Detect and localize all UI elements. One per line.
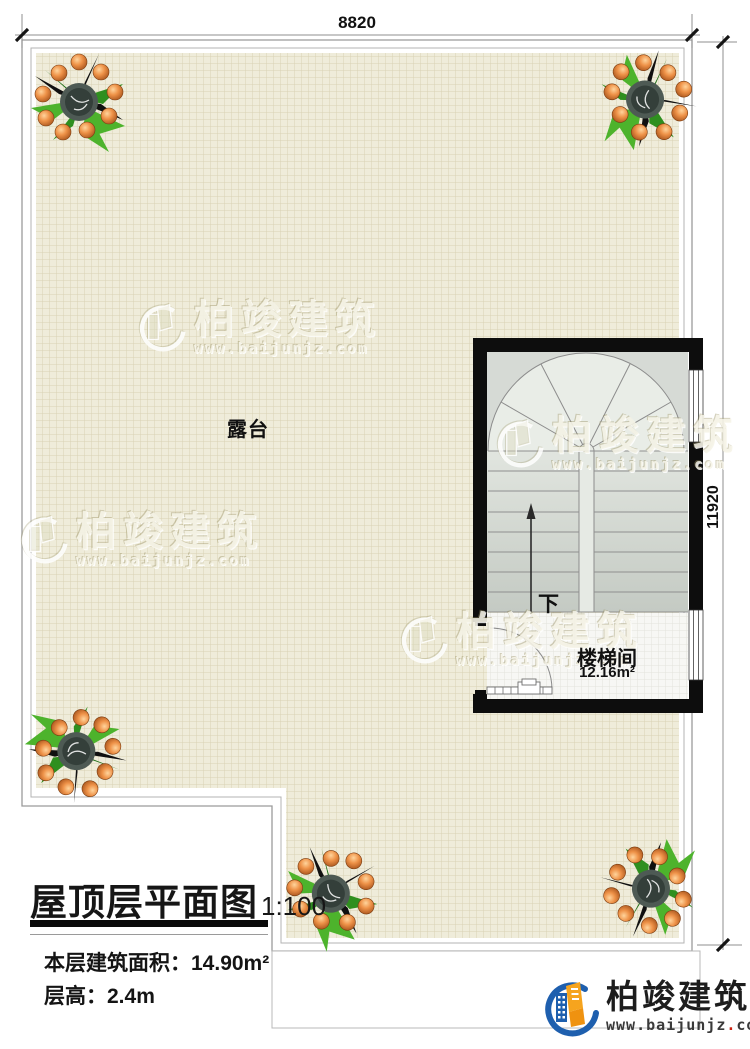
spec-floor-height-value: 2.4m (107, 985, 155, 1008)
company-logo: 柏竣建筑 www.baijunjz.com (539, 980, 750, 1040)
stair-flights (487, 444, 688, 613)
plan-scale: 1:100 (261, 891, 326, 921)
dimension-right-value: 11920 (705, 479, 723, 535)
floor-plan-page: 柏竣建筑 www.baijunjz.com 柏竣建筑 www.baijunjz.… (0, 0, 750, 1049)
title-underline-thick (30, 920, 268, 927)
logo-url-prefix: www.baijunjz (606, 1016, 726, 1034)
dimension-top-value: 8820 (307, 13, 407, 33)
logo-mark-icon (539, 980, 599, 1040)
spec-floor-height: 层高：2.4m (44, 980, 155, 1010)
spec-floor-area: 本层建筑面积：14.90m² (44, 947, 269, 977)
logo-text: 柏竣建筑 www.baijunjz.com (606, 980, 750, 1034)
spec-floor-area-value: 14.90m² (191, 952, 269, 975)
plan-title: 屋顶层平面图1:100 (30, 872, 326, 926)
stair-room-area: 12.16m² (560, 664, 654, 681)
stair-down-label: 下 (538, 588, 559, 618)
spec-floor-height-label: 层高： (44, 985, 107, 1008)
spec-floor-area-label: 本层建筑面积： (44, 952, 191, 975)
title-underline-thin (30, 934, 268, 935)
logo-name: 柏竣建筑 (606, 980, 750, 1015)
logo-url: www.baijunjz.com (606, 1016, 750, 1034)
logo-url-suffix: com (736, 1016, 750, 1034)
plan-title-text: 屋顶层平面图 (30, 882, 258, 923)
terrace-label: 露台 (218, 413, 278, 442)
logo-url-dot: . (726, 1016, 736, 1034)
